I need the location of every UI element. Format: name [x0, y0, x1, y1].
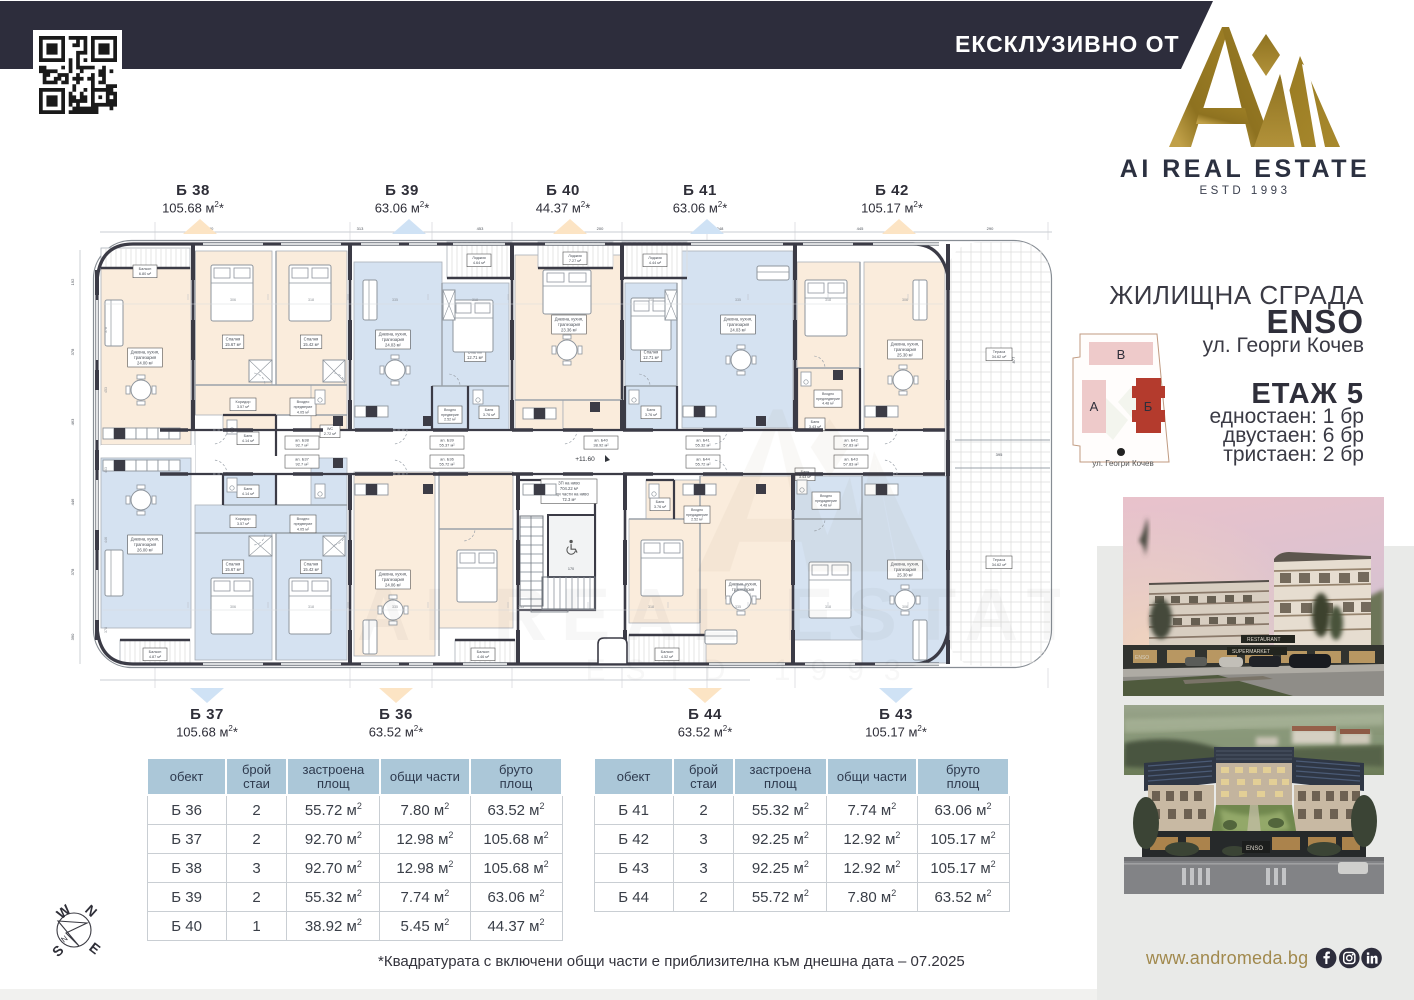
svg-text:390: 390 — [70, 633, 75, 640]
svg-text:+11.60: +11.60 — [575, 456, 595, 463]
svg-text:3.76 м²: 3.76 м² — [483, 413, 496, 417]
svg-text:ап. Б40: ап. Б40 — [594, 437, 608, 442]
svg-text:24.03 м²: 24.03 м² — [730, 328, 747, 333]
svg-text:4.44 м²: 4.44 м² — [649, 261, 662, 265]
svg-text:трапезария: трапезария — [382, 337, 404, 342]
svg-text:3.57 м²: 3.57 м² — [237, 405, 250, 409]
svg-text:WC: WC — [327, 427, 334, 431]
svg-text:Баня: Баня — [244, 434, 253, 438]
svg-text:Спалня: Спалня — [226, 337, 241, 342]
svg-text:В: В — [1117, 347, 1126, 362]
svg-text:395: 395 — [996, 452, 1003, 457]
svg-text:ап. Б38: ап. Б38 — [295, 437, 309, 442]
svg-text:ап. Б37: ап. Б37 — [295, 456, 309, 461]
svg-text:72.3 м²: 72.3 м² — [562, 497, 576, 502]
svg-text:Дневна, кухня,: Дневна, кухня, — [379, 332, 407, 337]
svg-text:трапезария: трапезария — [134, 355, 156, 360]
svg-text:AI REAL ESTATE: AI REAL ESTATE — [357, 573, 1060, 656]
svg-text:ап. Б41: ап. Б41 — [696, 437, 710, 442]
svg-text:24.00 м²: 24.00 м² — [137, 361, 154, 366]
svg-text:4.48 м²: 4.48 м² — [822, 402, 834, 406]
svg-text:3.76 м²: 3.76 м² — [645, 413, 658, 417]
svg-text:2.52 м²: 2.52 м² — [691, 518, 703, 522]
svg-text:4.05 м²: 4.05 м² — [297, 527, 310, 531]
svg-text:3.57 м²: 3.57 м² — [237, 522, 250, 526]
svg-text:Дневна, кухня,: Дневна, кухня, — [555, 317, 583, 322]
svg-text:4.64 м²: 4.64 м² — [473, 261, 486, 265]
svg-text:24.03 м²: 24.03 м² — [385, 343, 402, 348]
svg-text:предверие: предверие — [441, 413, 459, 417]
svg-text:463: 463 — [70, 418, 75, 425]
svg-text:15.67 м²: 15.67 м² — [225, 342, 242, 347]
svg-text:трапезария: трапезария — [727, 322, 749, 327]
svg-text:378: 378 — [70, 348, 75, 355]
svg-text:2.72 м²: 2.72 м² — [324, 432, 337, 436]
svg-text:192: 192 — [70, 278, 75, 285]
svg-text:ESTD 1993: ESTD 1993 — [585, 654, 920, 687]
svg-text:12.71 м²: 12.71 м² — [467, 355, 484, 360]
svg-text:SUPERMARKET: SUPERMARKET — [1232, 649, 1270, 655]
svg-text:Входно: Входно — [297, 400, 310, 404]
svg-text:Дневна, кухня,: Дневна, кухня, — [131, 537, 159, 542]
svg-text:Баня: Баня — [811, 420, 820, 424]
svg-text:ЗП на ниво: ЗП на ниво — [558, 481, 580, 486]
svg-text:15.67 м²: 15.67 м² — [225, 567, 242, 572]
svg-text:12.71 м²: 12.71 м² — [643, 355, 660, 360]
svg-text:318: 318 — [472, 298, 478, 302]
svg-text:4.05 м²: 4.05 м² — [297, 410, 310, 414]
svg-text:Коридор: Коридор — [236, 400, 251, 404]
svg-text:трапезария: трапезария — [894, 347, 916, 352]
svg-text:318: 318 — [308, 605, 314, 609]
svg-text:55.72 м²: 55.72 м² — [695, 462, 711, 467]
svg-text:Входно: Входно — [691, 508, 703, 512]
svg-text:200: 200 — [597, 226, 604, 231]
svg-text:4.14 м²: 4.14 м² — [242, 439, 255, 443]
svg-text:предадверие: предадверие — [686, 513, 708, 517]
svg-text:335: 335 — [392, 298, 398, 302]
svg-text:Баня: Баня — [244, 487, 253, 491]
svg-text:55.32 м²: 55.32 м² — [695, 443, 711, 448]
svg-text:Спалня: Спалня — [304, 337, 319, 342]
svg-text:Входно: Входно — [444, 408, 456, 412]
svg-text:170: 170 — [568, 567, 574, 571]
svg-text:7.27 м²: 7.27 м² — [569, 259, 582, 263]
svg-text:W: W — [53, 901, 74, 922]
svg-text:92.7 м²: 92.7 м² — [296, 443, 310, 448]
svg-text:Дневна, кухня,: Дневна, кухня, — [131, 350, 159, 355]
svg-text:трапезария: трапезария — [558, 322, 580, 327]
svg-text:34.62 м²: 34.62 м² — [992, 563, 1007, 567]
svg-text:ап. Б44: ап. Б44 — [696, 456, 710, 461]
svg-text:446: 446 — [70, 498, 75, 505]
svg-text:25.30 м²: 25.30 м² — [897, 353, 914, 358]
svg-text:446: 446 — [104, 537, 108, 543]
svg-text:453: 453 — [104, 387, 108, 393]
svg-text:378: 378 — [104, 627, 108, 633]
svg-text:55.37 м²: 55.37 м² — [439, 443, 455, 448]
svg-text:Тераса: Тераса — [993, 558, 1006, 562]
svg-text:трапезария: трапезария — [134, 542, 156, 547]
svg-text:453: 453 — [477, 226, 484, 231]
svg-text:Балкон: Балкон — [139, 267, 152, 271]
svg-text:RESTAURANT: RESTAURANT — [1247, 637, 1281, 643]
svg-text:Балкон: Балкон — [149, 650, 162, 654]
svg-text:Входно: Входно — [297, 517, 310, 521]
svg-text:306: 306 — [230, 605, 236, 609]
svg-text:15.42 м²: 15.42 м² — [303, 567, 320, 572]
svg-text:4.48 м²: 4.48 м² — [820, 504, 832, 508]
svg-text:34.62 м²: 34.62 м² — [992, 355, 1007, 359]
svg-text:Лоджия: Лоджия — [568, 254, 581, 258]
svg-text:3.76 м²: 3.76 м² — [654, 505, 667, 509]
svg-text:6.80 м²: 6.80 м² — [139, 272, 152, 276]
svg-text:38.92 м²: 38.92 м² — [593, 443, 609, 448]
svg-text:445: 445 — [857, 226, 864, 231]
svg-text:378: 378 — [104, 327, 108, 333]
svg-text:Спалня: Спалня — [304, 562, 319, 567]
svg-text:290: 290 — [987, 226, 994, 231]
svg-text:Дневна, кухня,: Дневна, кухня, — [724, 317, 752, 322]
svg-text:4.14 м²: 4.14 м² — [242, 492, 255, 496]
svg-text:378: 378 — [70, 568, 75, 575]
svg-text:306: 306 — [230, 298, 236, 302]
svg-text:Тераса: Тераса — [993, 350, 1006, 354]
svg-text:E: E — [86, 939, 103, 957]
svg-text:55.72 м²: 55.72 м² — [439, 462, 455, 467]
svg-text:Коридор: Коридор — [236, 517, 251, 521]
svg-text:Входно: Входно — [822, 392, 834, 396]
svg-text:Лоджия: Лоджия — [472, 256, 485, 260]
svg-text:предверие: предверие — [294, 522, 313, 526]
svg-text:57.83 м²: 57.83 м² — [843, 462, 859, 467]
svg-text:ап. Б39: ап. Б39 — [440, 437, 454, 442]
svg-text:15.42 м²: 15.42 м² — [303, 342, 320, 347]
svg-text:Б: Б — [1144, 399, 1153, 414]
svg-text:313: 313 — [357, 226, 364, 231]
svg-text:ап. Б42: ап. Б42 — [844, 437, 858, 442]
svg-text:ENSO: ENSO — [1135, 655, 1149, 661]
svg-text:4.87 м²: 4.87 м² — [149, 655, 162, 659]
svg-text:92.7 м²: 92.7 м² — [296, 462, 310, 467]
svg-text:Входно: Входно — [820, 494, 832, 498]
svg-text:ENSO: ENSO — [1246, 846, 1263, 852]
svg-text:ап. Б43: ап. Б43 — [844, 456, 858, 461]
svg-text:335: 335 — [735, 298, 741, 302]
svg-text:318: 318 — [308, 298, 314, 302]
svg-text:23.36 м²: 23.36 м² — [561, 328, 578, 333]
svg-text:предадверие: предадверие — [815, 499, 837, 503]
svg-text:ап. Б36: ап. Б36 — [440, 456, 454, 461]
svg-text:Лоджия: Лоджия — [648, 256, 661, 260]
svg-text:463: 463 — [104, 467, 108, 473]
svg-text:26.00 м²: 26.00 м² — [137, 548, 154, 553]
svg-text:предверие: предверие — [294, 405, 313, 409]
svg-text:Баня: Баня — [647, 408, 656, 412]
svg-text:А: А — [1090, 399, 1099, 414]
svg-text:704.22 м²: 704.22 м² — [560, 486, 579, 491]
svg-text:Спалня: Спалня — [226, 562, 241, 567]
svg-text:2.52 м²: 2.52 м² — [444, 418, 456, 422]
svg-text:306: 306 — [902, 298, 908, 302]
svg-text:Баня: Баня — [656, 500, 665, 504]
svg-text:Дневна, кухня,: Дневна, кухня, — [891, 342, 919, 347]
svg-text:предледверие: предледверие — [816, 397, 840, 401]
svg-text:318: 318 — [648, 298, 654, 302]
svg-text:Баня: Баня — [485, 408, 494, 412]
